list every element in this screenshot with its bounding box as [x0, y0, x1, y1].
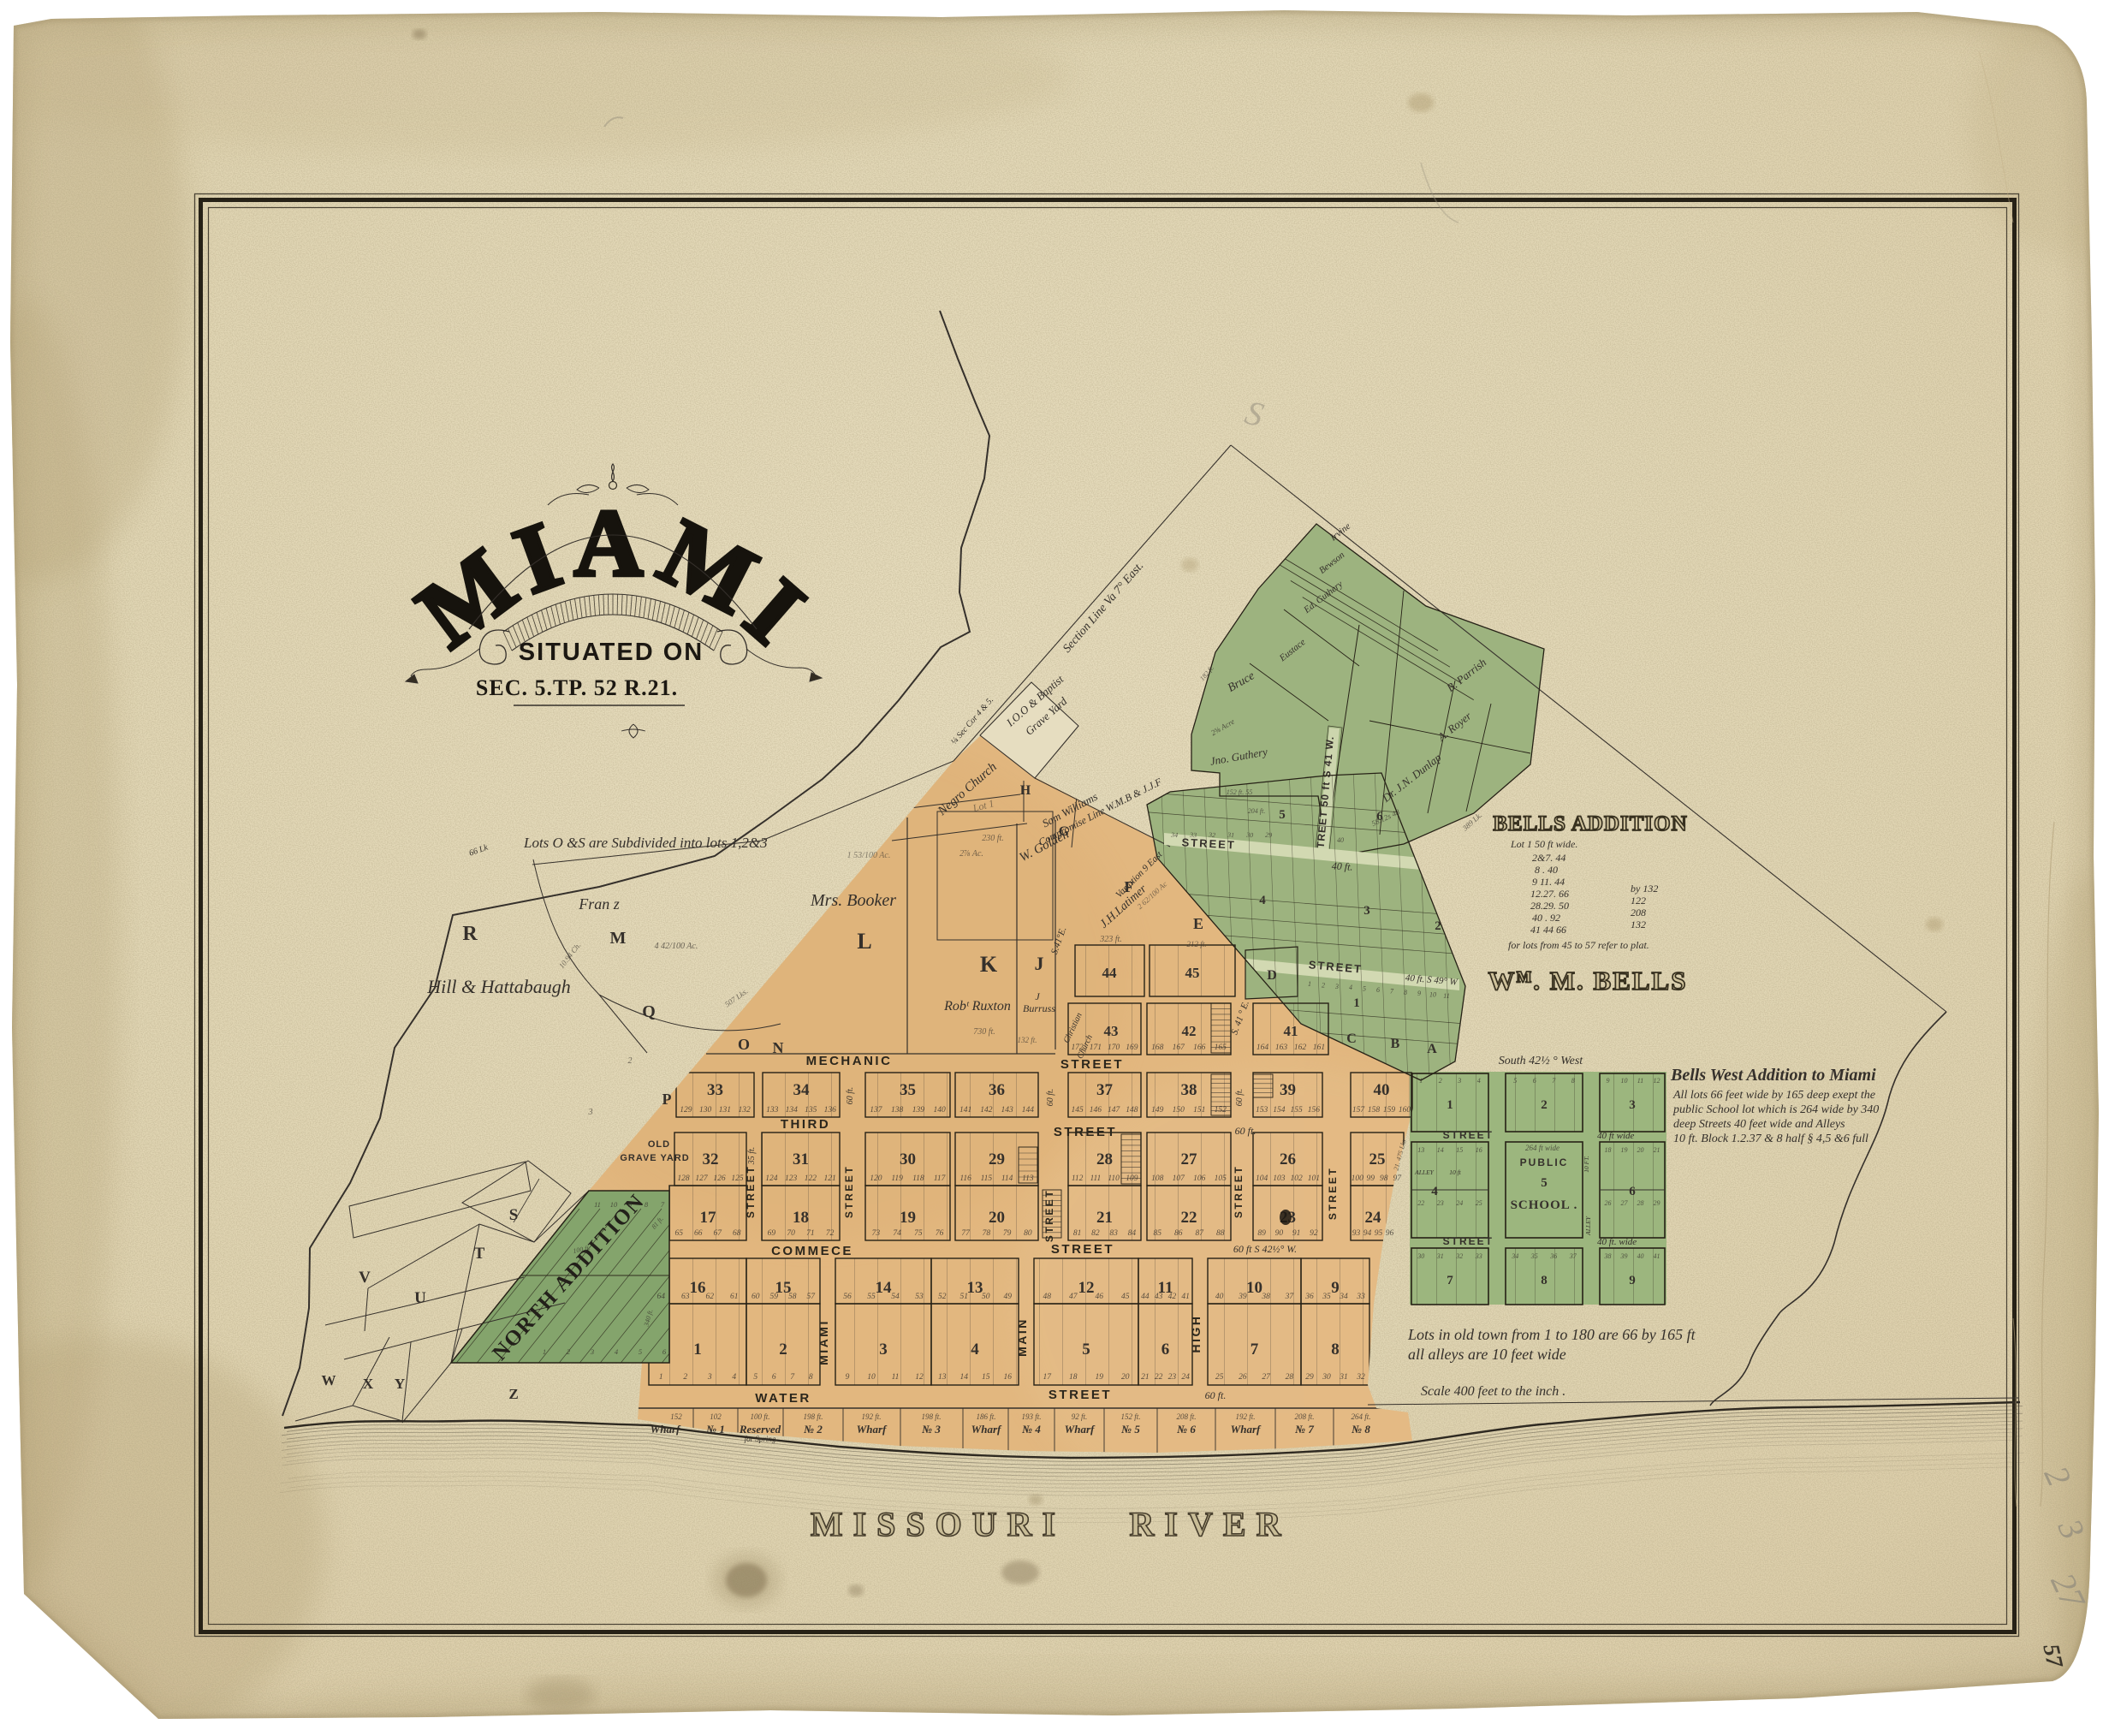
svg-text:32: 32: [1455, 1252, 1463, 1260]
svg-text:57: 57: [807, 1293, 817, 1301]
svg-text:28: 28: [1096, 1150, 1113, 1168]
svg-text:169: 169: [1126, 1043, 1138, 1052]
svg-text:12: 12: [1078, 1279, 1095, 1297]
svg-text:Y: Y: [395, 1376, 405, 1392]
svg-text:62: 62: [706, 1293, 715, 1301]
svg-text:COMMECE: COMMECE: [771, 1244, 853, 1258]
svg-text:STREET: STREET: [1043, 1189, 1055, 1242]
svg-text:V: V: [359, 1269, 371, 1287]
svg-text:152: 152: [1215, 1106, 1227, 1115]
svg-text:10: 10: [610, 1200, 618, 1209]
svg-text:43: 43: [1104, 1023, 1119, 1039]
svg-text:M: M: [610, 929, 627, 948]
svg-text:8: 8: [809, 1373, 813, 1382]
svg-text:8: 8: [1404, 989, 1407, 996]
svg-text:14: 14: [876, 1279, 893, 1297]
svg-text:Hill & Hattabaugh: Hill & Hattabaugh: [426, 976, 570, 997]
svg-text:Wharf: Wharf: [1065, 1423, 1096, 1436]
svg-text:26: 26: [1280, 1150, 1296, 1168]
svg-text:60: 60: [752, 1293, 760, 1301]
svg-text:STREET: STREET: [1054, 1125, 1117, 1139]
svg-text:36: 36: [989, 1081, 1005, 1099]
svg-text:6: 6: [1376, 986, 1380, 994]
svg-text:155: 155: [1291, 1106, 1304, 1115]
svg-text:193 ft.: 193 ft.: [1021, 1412, 1041, 1421]
svg-text:158: 158: [1368, 1106, 1381, 1115]
svg-text:10: 10: [867, 1373, 876, 1382]
svg-text:5: 5: [639, 1347, 642, 1356]
svg-text:№ 8: № 8: [1351, 1423, 1370, 1436]
svg-text:102: 102: [710, 1412, 722, 1421]
svg-text:192 ft.: 192 ft.: [861, 1412, 881, 1421]
svg-text:D: D: [1267, 968, 1277, 983]
svg-text:STREET: STREET: [1443, 1235, 1494, 1247]
svg-text:33: 33: [707, 1081, 723, 1099]
svg-text:230 ft.: 230 ft.: [982, 834, 1004, 843]
svg-text:23: 23: [1437, 1199, 1444, 1207]
svg-text:39: 39: [1280, 1081, 1296, 1099]
svg-text:159: 159: [1383, 1106, 1396, 1115]
svg-text:STREET: STREET: [1443, 1129, 1494, 1141]
svg-text:61: 61: [730, 1293, 739, 1301]
svg-text:38: 38: [1181, 1081, 1197, 1099]
svg-text:198 ft.: 198 ft.: [921, 1412, 941, 1421]
svg-text:10: 10: [1429, 991, 1436, 999]
svg-text:100 ft.: 100 ft.: [750, 1412, 769, 1421]
svg-text:117: 117: [934, 1174, 947, 1183]
svg-text:4: 4: [1431, 1185, 1438, 1198]
svg-text:142: 142: [980, 1106, 993, 1115]
svg-text:4: 4: [732, 1373, 736, 1382]
svg-text:4: 4: [1349, 984, 1352, 991]
svg-text:public School lot which is: public School lot which is 264 wide by 3…: [1672, 1103, 1879, 1116]
svg-text:186 ft.: 186 ft.: [976, 1412, 995, 1421]
svg-text:123: 123: [785, 1174, 798, 1183]
svg-text:1: 1: [659, 1373, 663, 1382]
svg-text:41: 41: [1181, 1293, 1190, 1301]
svg-text:STREET: STREET: [1233, 1165, 1245, 1218]
svg-text:43: 43: [1155, 1293, 1163, 1301]
svg-text:37: 37: [1285, 1293, 1295, 1301]
svg-text:163: 163: [1275, 1043, 1288, 1052]
svg-text:12: 12: [915, 1373, 924, 1382]
svg-text:65: 65: [675, 1229, 684, 1238]
svg-text:102: 102: [1291, 1174, 1304, 1183]
svg-text:129: 129: [680, 1106, 692, 1115]
svg-text:150: 150: [1173, 1106, 1185, 1115]
svg-text:X: X: [363, 1376, 374, 1392]
svg-text:162: 162: [1294, 1043, 1307, 1052]
svg-text:5: 5: [1279, 808, 1286, 822]
svg-text:21: 21: [1654, 1146, 1660, 1154]
svg-text:Q: Q: [642, 1002, 656, 1021]
svg-text:1: 1: [1447, 1098, 1453, 1112]
svg-text:31: 31: [1339, 1373, 1348, 1382]
svg-text:30: 30: [1322, 1373, 1331, 1382]
svg-text:34: 34: [793, 1081, 811, 1099]
svg-text:35 ft.: 35 ft.: [747, 1147, 757, 1166]
svg-text:79: 79: [1003, 1229, 1012, 1238]
svg-text:53: 53: [915, 1293, 924, 1301]
svg-text:35: 35: [1322, 1293, 1331, 1301]
svg-text:18: 18: [1069, 1373, 1078, 1382]
svg-text:70: 70: [787, 1229, 795, 1238]
svg-text:139: 139: [912, 1106, 925, 1115]
svg-text:25: 25: [1215, 1373, 1224, 1382]
svg-text:1: 1: [693, 1341, 702, 1358]
svg-text:1: 1: [1353, 996, 1360, 1010]
svg-text:151: 151: [1193, 1106, 1205, 1115]
svg-text:160: 160: [1399, 1106, 1411, 1115]
svg-text:THIRD: THIRD: [781, 1117, 830, 1132]
svg-text:51: 51: [960, 1293, 969, 1301]
svg-text:Wharf: Wharf: [1231, 1423, 1262, 1436]
svg-text:41 44 66: 41 44 66: [1530, 924, 1566, 936]
svg-text:22: 22: [1417, 1199, 1424, 1207]
svg-text:7: 7: [1251, 1341, 1259, 1358]
svg-text:25: 25: [1476, 1199, 1482, 1207]
svg-text:45: 45: [1185, 965, 1200, 981]
svg-text:9: 9: [1607, 1077, 1610, 1085]
svg-text:94: 94: [1363, 1229, 1372, 1238]
svg-text:6: 6: [1161, 1341, 1170, 1358]
svg-text:36: 36: [1549, 1252, 1557, 1260]
svg-text:ALLEY: ALLEY: [1414, 1168, 1435, 1176]
svg-text:84: 84: [1128, 1229, 1137, 1238]
svg-text:S: S: [509, 1206, 519, 1224]
svg-text:WATER: WATER: [755, 1391, 811, 1406]
svg-text:25: 25: [1369, 1150, 1386, 1168]
svg-text:22: 22: [1155, 1373, 1163, 1382]
svg-text:2: 2: [1322, 981, 1325, 989]
svg-text:3: 3: [1629, 1098, 1636, 1112]
svg-text:128: 128: [677, 1174, 690, 1183]
svg-text:24: 24: [1181, 1373, 1190, 1382]
svg-text:20: 20: [1637, 1146, 1644, 1154]
svg-text:135: 135: [805, 1106, 817, 1115]
svg-text:Scale 400 feet to the inch .: Scale 400 feet to the inch .: [1421, 1384, 1565, 1399]
svg-text:B: B: [1391, 1037, 1400, 1051]
svg-text:4: 4: [1259, 894, 1266, 907]
svg-text:31: 31: [1227, 831, 1234, 839]
svg-text:109: 109: [1126, 1174, 1138, 1183]
svg-text:2: 2: [1541, 1098, 1548, 1112]
svg-text:15: 15: [1456, 1146, 1463, 1154]
svg-text:33: 33: [1475, 1252, 1482, 1260]
svg-text:8: 8: [1331, 1341, 1340, 1358]
svg-text:103: 103: [1273, 1174, 1286, 1183]
svg-text:198 ft.: 198 ft.: [803, 1412, 823, 1421]
svg-text:GRAVE YARD: GRAVE YARD: [620, 1153, 689, 1163]
svg-text:A: A: [1427, 1042, 1437, 1056]
svg-text:SITUATED ON: SITUATED ON: [519, 639, 704, 666]
svg-text:119: 119: [891, 1174, 903, 1183]
svg-text:87: 87: [1196, 1229, 1205, 1238]
svg-text:9: 9: [846, 1373, 850, 1382]
svg-text:168: 168: [1151, 1043, 1164, 1052]
svg-text:17: 17: [700, 1209, 717, 1227]
svg-text:31: 31: [793, 1150, 809, 1168]
svg-text:121: 121: [824, 1174, 836, 1183]
svg-text:33: 33: [1189, 831, 1197, 839]
svg-text:153: 153: [1256, 1106, 1268, 1115]
svg-text:13: 13: [1417, 1146, 1424, 1154]
svg-text:48: 48: [1043, 1293, 1052, 1301]
svg-text:16: 16: [690, 1279, 706, 1297]
svg-text:1 53/100 Ac.: 1 53/100 Ac.: [847, 851, 891, 860]
svg-text:8: 8: [1571, 1077, 1575, 1085]
svg-text:Lots in old town from 1 to: Lots in old town from 1 to 180 are 66 by…: [1407, 1326, 1696, 1343]
svg-text:49: 49: [1004, 1293, 1013, 1301]
svg-text:Robᵗ Ruxton: Robᵗ Ruxton: [943, 999, 1011, 1014]
svg-text:101: 101: [1308, 1174, 1320, 1183]
svg-text:O: O: [738, 1036, 750, 1053]
svg-text:41: 41: [1284, 1023, 1298, 1039]
svg-text:30: 30: [1245, 831, 1253, 839]
svg-text:44: 44: [1102, 965, 1118, 981]
svg-text:92: 92: [1310, 1229, 1318, 1238]
svg-text:76: 76: [936, 1229, 944, 1238]
svg-text:Bells West Addition to Miami: Bells West Addition to Miami: [1670, 1066, 1876, 1085]
svg-text:J: J: [1035, 953, 1044, 974]
svg-text:20: 20: [989, 1209, 1005, 1227]
svg-text:35: 35: [1530, 1252, 1538, 1260]
svg-text:107: 107: [1173, 1174, 1186, 1183]
svg-text:152: 152: [670, 1412, 682, 1421]
svg-text:№ 2: № 2: [803, 1423, 823, 1436]
svg-text:PUBLIC: PUBLIC: [1520, 1156, 1569, 1168]
svg-text:204 ft.: 204 ft.: [1248, 807, 1265, 815]
svg-text:3: 3: [707, 1373, 712, 1382]
svg-text:40 ft. wide: 40 ft. wide: [1597, 1237, 1637, 1247]
svg-text:3: 3: [1363, 904, 1370, 918]
svg-text:29: 29: [1654, 1199, 1660, 1207]
svg-text:28: 28: [1637, 1199, 1644, 1207]
svg-text:12.27. 66: 12.27. 66: [1530, 888, 1569, 900]
svg-text:U: U: [414, 1289, 426, 1307]
svg-text:23: 23: [1168, 1373, 1177, 1382]
svg-text:Mrs. Booker: Mrs. Booker: [810, 891, 896, 910]
svg-text:264 ft wide: 264 ft wide: [1525, 1144, 1559, 1152]
svg-text:№ 6: № 6: [1176, 1423, 1196, 1436]
svg-text:W: W: [322, 1372, 336, 1388]
svg-text:81: 81: [1073, 1229, 1082, 1238]
svg-text:29: 29: [1265, 831, 1272, 839]
svg-text:2: 2: [683, 1373, 687, 1382]
svg-text:42: 42: [1182, 1023, 1197, 1039]
svg-text:36: 36: [1304, 1293, 1314, 1301]
svg-text:75: 75: [914, 1229, 923, 1238]
svg-text:26: 26: [1239, 1373, 1247, 1382]
svg-text:93: 93: [1352, 1229, 1361, 1238]
svg-text:77: 77: [961, 1229, 971, 1238]
svg-text:60 ft S 42½° W.: 60 ft S 42½° W.: [1233, 1243, 1297, 1255]
svg-text:108: 108: [1151, 1174, 1164, 1183]
svg-text:45: 45: [1121, 1293, 1130, 1301]
svg-text:4: 4: [1477, 1077, 1481, 1085]
svg-text:19: 19: [900, 1209, 916, 1227]
svg-text:Reserved: Reserved: [739, 1423, 781, 1436]
svg-text:157: 157: [1352, 1106, 1366, 1115]
svg-text:6: 6: [1533, 1077, 1536, 1085]
svg-text:L: L: [857, 929, 871, 954]
svg-text:17: 17: [1043, 1373, 1053, 1382]
svg-text:130: 130: [699, 1106, 712, 1115]
svg-text:HIGH: HIGH: [1189, 1315, 1203, 1353]
svg-text:1: 1: [1308, 980, 1311, 988]
svg-text:5: 5: [1513, 1077, 1517, 1085]
svg-text:21: 21: [1141, 1373, 1150, 1382]
svg-text:South 42½ ° West: South 42½ ° West: [1499, 1055, 1584, 1067]
svg-text:208 ft.: 208 ft.: [1294, 1412, 1314, 1421]
svg-text:192 ft.: 192 ft.: [1235, 1412, 1255, 1421]
svg-text:74: 74: [893, 1229, 901, 1238]
svg-text:164: 164: [1256, 1043, 1269, 1052]
svg-text:10: 10: [1246, 1279, 1262, 1297]
svg-text:K: K: [980, 952, 998, 977]
svg-text:208: 208: [1631, 907, 1646, 919]
svg-text:N: N: [773, 1039, 784, 1056]
svg-text:R: R: [462, 923, 478, 945]
svg-text:30: 30: [1417, 1252, 1424, 1260]
svg-text:40: 40: [1637, 1252, 1644, 1260]
svg-text:Z: Z: [508, 1386, 518, 1402]
svg-text:Wharf: Wharf: [971, 1423, 1002, 1436]
svg-text:68: 68: [733, 1229, 741, 1238]
svg-text:1: 1: [1419, 1077, 1423, 1085]
svg-text:3: 3: [879, 1341, 888, 1358]
svg-text:41: 41: [1654, 1252, 1660, 1260]
svg-text:E: E: [1193, 915, 1203, 932]
svg-text:P: P: [662, 1091, 672, 1108]
svg-text:Wᴹ. M. BELLS: Wᴹ. M. BELLS: [1488, 966, 1688, 996]
svg-text:BELLS ADDITION: BELLS ADDITION: [1493, 812, 1687, 835]
svg-text:145: 145: [1072, 1106, 1084, 1115]
svg-text:80: 80: [1024, 1229, 1032, 1238]
svg-text:95: 95: [1375, 1229, 1383, 1238]
svg-text:for lots from 45 to 57 refer: for lots from 45 to 57 refer to plat.: [1508, 939, 1649, 951]
svg-text:69: 69: [768, 1229, 776, 1238]
svg-text:20: 20: [1121, 1373, 1130, 1382]
svg-text:42: 42: [1168, 1293, 1177, 1301]
svg-text:88: 88: [1216, 1229, 1225, 1238]
svg-text:38: 38: [1604, 1252, 1612, 1260]
svg-text:40: 40: [1337, 836, 1344, 844]
svg-text:11: 11: [594, 1200, 601, 1209]
svg-text:MECHANIC: MECHANIC: [806, 1054, 893, 1068]
svg-text:141: 141: [959, 1106, 971, 1115]
svg-text:63: 63: [681, 1293, 690, 1301]
svg-text:by 132: by 132: [1631, 883, 1658, 895]
svg-text:140: 140: [934, 1106, 947, 1115]
svg-text:28.29. 50: 28.29. 50: [1530, 900, 1569, 912]
svg-text:21: 21: [1096, 1209, 1113, 1227]
svg-text:132 ft.: 132 ft.: [1017, 1036, 1037, 1044]
svg-text:82: 82: [1091, 1229, 1100, 1238]
svg-text:144: 144: [1022, 1106, 1035, 1115]
svg-text:58: 58: [788, 1293, 797, 1301]
svg-text:11: 11: [1443, 992, 1449, 1000]
svg-text:34: 34: [1170, 831, 1178, 839]
svg-text:147: 147: [1108, 1106, 1121, 1115]
svg-text:44: 44: [1141, 1293, 1150, 1301]
svg-text:3: 3: [1457, 1077, 1461, 1085]
svg-text:MISSOURI: MISSOURI: [811, 1505, 1066, 1543]
svg-text:29: 29: [1305, 1373, 1314, 1382]
svg-text:96: 96: [1386, 1229, 1394, 1238]
svg-text:№ 3: № 3: [921, 1423, 941, 1436]
svg-text:5: 5: [1363, 985, 1366, 993]
svg-text:152 ft. 55: 152 ft. 55: [1227, 788, 1252, 796]
svg-text:3: 3: [588, 1108, 593, 1117]
svg-text:89: 89: [1257, 1229, 1266, 1238]
svg-text:8 . 40: 8 . 40: [1535, 864, 1558, 876]
svg-text:1: 1: [543, 1347, 546, 1356]
svg-text:34: 34: [1339, 1293, 1348, 1301]
svg-text:all alleys are 10 feet wid: all alleys are 10 feet wide: [1408, 1346, 1566, 1363]
svg-text:50: 50: [982, 1293, 990, 1301]
svg-text:208 ft.: 208 ft.: [1176, 1412, 1196, 1421]
svg-text:MIAMI: MIAMI: [817, 1319, 830, 1365]
svg-text:27: 27: [1621, 1199, 1629, 1207]
svg-text:122: 122: [1631, 895, 1646, 907]
svg-text:98: 98: [1380, 1174, 1388, 1183]
svg-text:№ 7: № 7: [1294, 1423, 1314, 1436]
svg-text:64: 64: [657, 1293, 666, 1301]
svg-text:86: 86: [1174, 1229, 1183, 1238]
svg-text:29: 29: [989, 1150, 1005, 1168]
svg-text:73: 73: [872, 1229, 881, 1238]
svg-text:131: 131: [719, 1106, 731, 1115]
svg-text:9 11. 44: 9 11. 44: [1532, 876, 1565, 888]
svg-text:Lot 1 50 ft wide.: Lot 1 50 ft wide.: [1510, 838, 1577, 850]
svg-text:55: 55: [867, 1293, 876, 1301]
svg-text:78: 78: [983, 1229, 991, 1238]
svg-text:40 ft.: 40 ft.: [1332, 859, 1353, 872]
svg-text:100: 100: [1352, 1174, 1364, 1183]
svg-text:97: 97: [1393, 1174, 1403, 1183]
svg-text:90: 90: [1275, 1229, 1284, 1238]
svg-text:Lots O &S are Subdivided into: Lots O &S are Subdivided into lots 1,2&3: [523, 835, 768, 851]
svg-text:39: 39: [1238, 1293, 1247, 1301]
svg-text:161: 161: [1313, 1043, 1325, 1052]
svg-text:104: 104: [1256, 1174, 1268, 1183]
svg-text:38: 38: [1261, 1293, 1270, 1301]
svg-text:33: 33: [1356, 1293, 1365, 1301]
svg-text:54: 54: [891, 1293, 900, 1301]
svg-text:№ 4: № 4: [1021, 1423, 1041, 1436]
svg-text:105: 105: [1215, 1174, 1227, 1183]
svg-text:110: 110: [1108, 1174, 1120, 1183]
svg-text:6: 6: [772, 1373, 776, 1382]
svg-text:132: 132: [1631, 919, 1646, 930]
svg-text:32: 32: [1208, 831, 1215, 839]
svg-text:2: 2: [779, 1341, 787, 1358]
svg-text:7: 7: [1447, 1274, 1453, 1287]
svg-text:№ 5: № 5: [1120, 1423, 1140, 1436]
svg-text:22: 22: [1181, 1209, 1197, 1227]
svg-text:46: 46: [1096, 1293, 1104, 1301]
svg-text:2⅞ Ac.: 2⅞ Ac.: [959, 849, 983, 859]
svg-text:35: 35: [900, 1081, 916, 1099]
svg-text:31: 31: [1436, 1252, 1444, 1260]
svg-text:67: 67: [714, 1229, 723, 1238]
svg-text:10 ft: 10 ft: [1449, 1168, 1461, 1176]
svg-text:47: 47: [1069, 1293, 1078, 1301]
svg-text:24: 24: [1456, 1199, 1463, 1207]
svg-text:12: 12: [1654, 1077, 1660, 1085]
svg-text:Burruss: Burruss: [1023, 1002, 1055, 1014]
